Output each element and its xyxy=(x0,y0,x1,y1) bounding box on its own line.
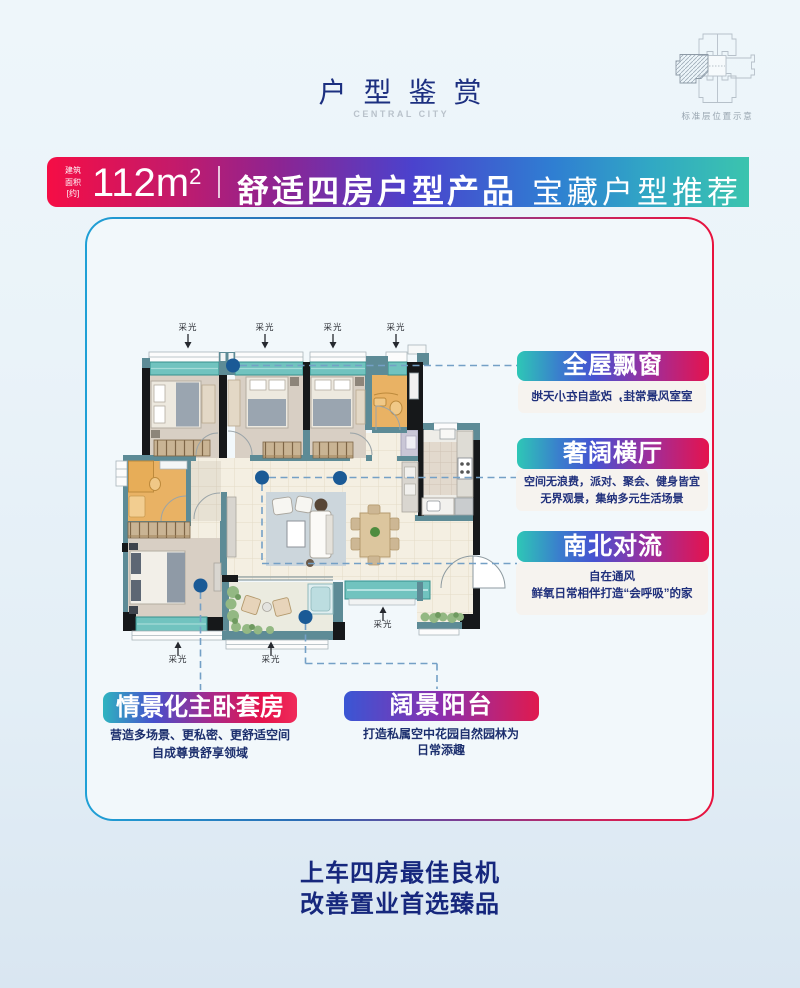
svg-text:采光: 采光 xyxy=(386,322,405,332)
svg-text:采光: 采光 xyxy=(323,322,342,332)
svg-text:采光: 采光 xyxy=(178,322,197,332)
svg-text:采光: 采光 xyxy=(255,322,274,332)
